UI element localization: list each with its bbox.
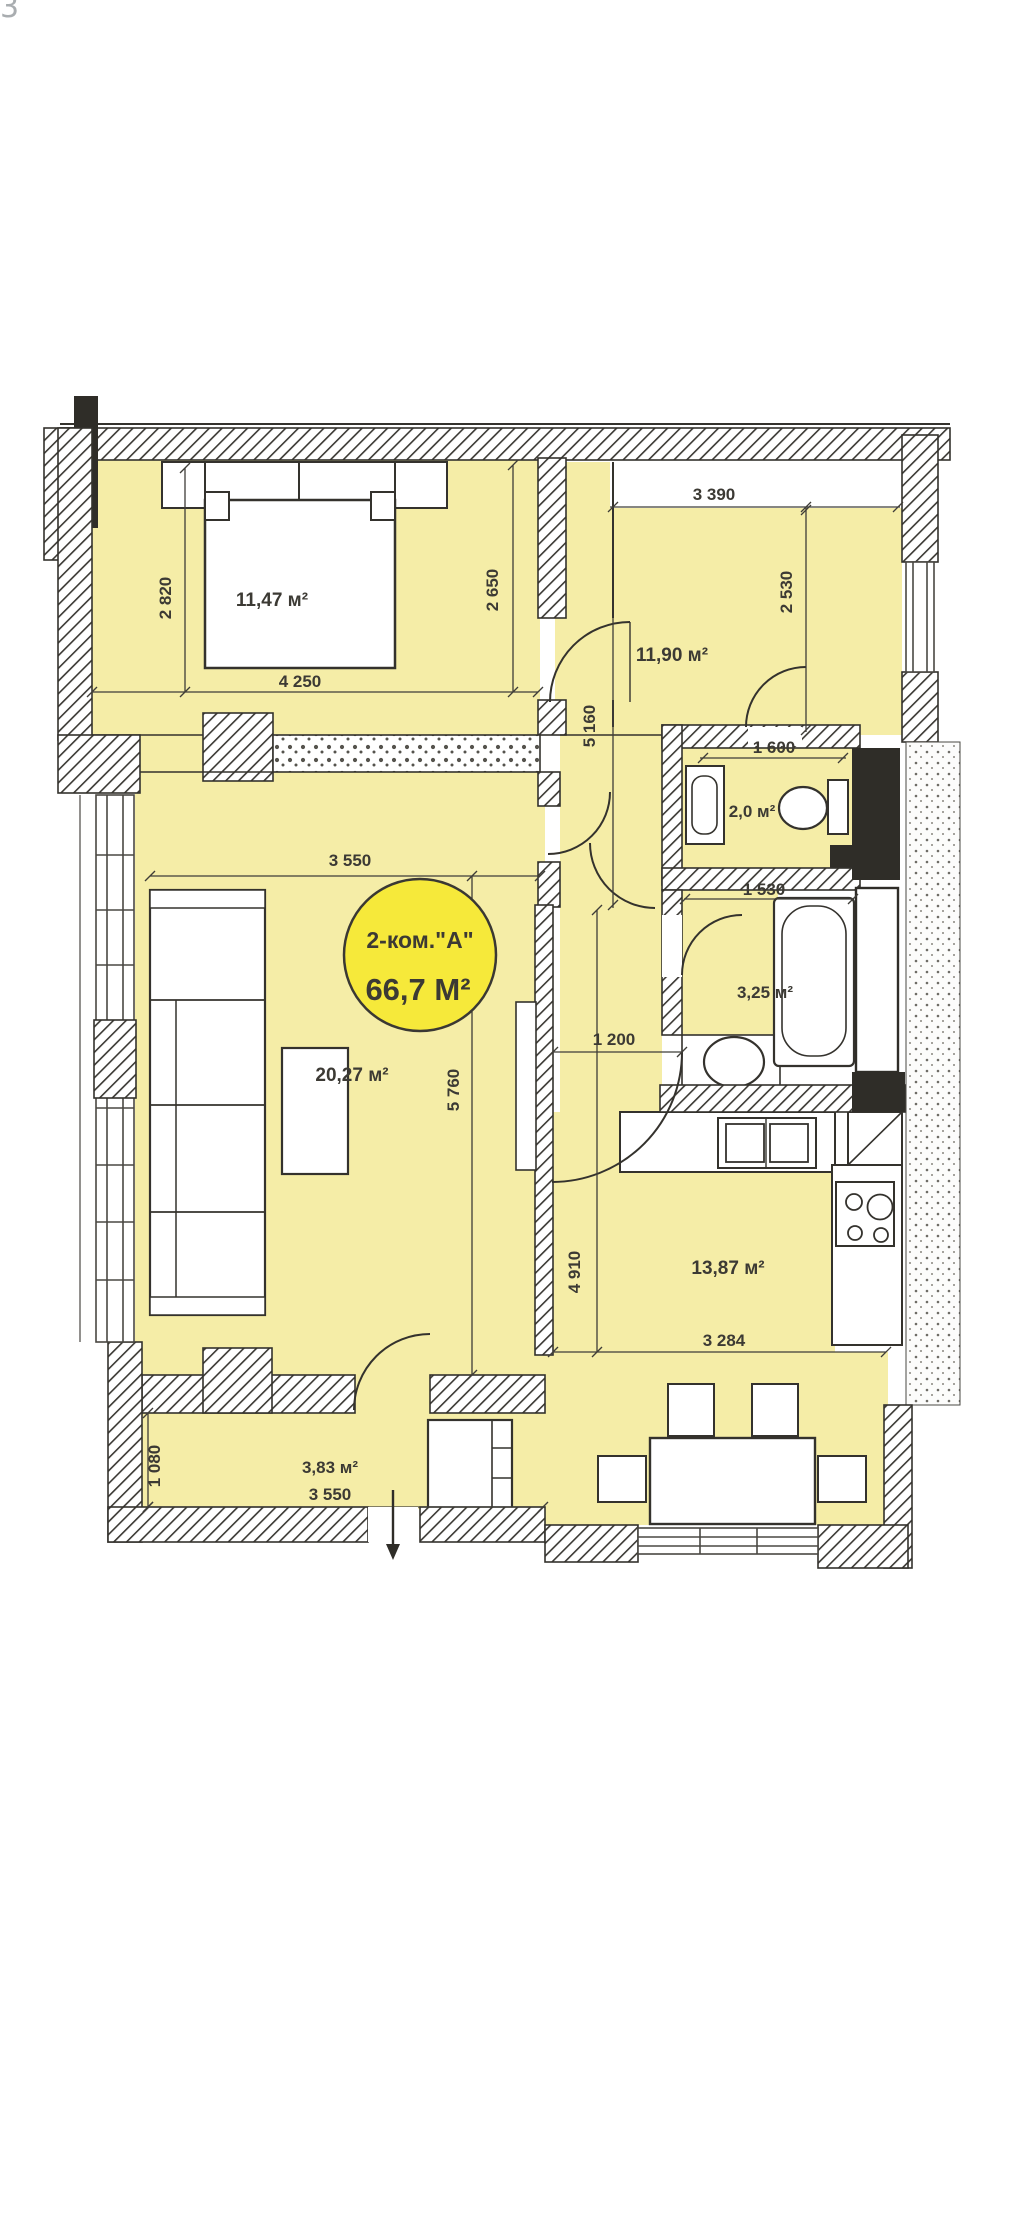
- bed-corner-right: [371, 492, 395, 520]
- wc-area-label: 2,0 м²: [729, 802, 776, 821]
- living-area-label: 20,27 м²: [315, 1065, 388, 1086]
- sofa-group: [150, 890, 265, 1315]
- dim-5160-label: 5 160: [580, 705, 599, 748]
- chair: [668, 1384, 714, 1436]
- chair: [818, 1456, 866, 1502]
- wardrobe: [428, 1420, 512, 1508]
- dim-3550-top-label: 3 550: [329, 851, 372, 870]
- wall-right-top: [902, 435, 938, 562]
- vent-shaft: [856, 888, 898, 1072]
- floor-plan-drawing: 2-ком."А" 66,7 М² 11,47 м² 11,90 м² 2,0 …: [0, 0, 1024, 2216]
- dim-1600-label: 1 600: [753, 738, 796, 757]
- sofa-armrest-bottom: [150, 1297, 265, 1315]
- window-kitchen: [638, 1528, 818, 1554]
- chair: [752, 1384, 798, 1436]
- wall-left-bedroom: [58, 428, 92, 740]
- bath-area-label: 3,25 м²: [737, 983, 793, 1002]
- burner: [874, 1228, 888, 1242]
- burner: [848, 1226, 862, 1240]
- burner: [846, 1194, 862, 1210]
- dim-4250-label: 4 250: [279, 672, 322, 691]
- bath-washbasin: [704, 1037, 764, 1087]
- insulated-band: [273, 735, 540, 772]
- arrow-head: [386, 1544, 400, 1560]
- dining-table: [650, 1438, 815, 1524]
- dim-2820-label: 2 820: [156, 577, 175, 620]
- wall-bedroom-right: [538, 458, 566, 618]
- dim-3550-bottom-label: 3 550: [309, 1485, 352, 1504]
- chair: [598, 1456, 646, 1502]
- room2-area-label: 11,90 м²: [636, 645, 708, 666]
- wall-column: [203, 713, 273, 781]
- bed-mattress: [205, 500, 395, 668]
- dim-3390-label: 3 390: [693, 485, 736, 504]
- corner-page-number: 3: [0, 0, 19, 25]
- unit-badge: 2-ком."А" 66,7 М²: [344, 879, 496, 1031]
- hall-area-label: 3,83 м²: [302, 1458, 358, 1477]
- toilet-bowl: [779, 787, 827, 829]
- sofa-body: [150, 890, 265, 1315]
- window-room2: [906, 562, 934, 672]
- dim-2530-label: 2 530: [777, 571, 796, 614]
- badge-total-area: 66,7 М²: [365, 972, 470, 1007]
- dim-1200-label: 1 200: [593, 1030, 636, 1049]
- bed-corner-left: [205, 492, 229, 520]
- toilet-tank: [828, 780, 848, 834]
- wall-column-2: [203, 1348, 272, 1413]
- stove: [836, 1182, 894, 1246]
- sofa-armrest-top: [150, 890, 265, 908]
- dim-2650-label: 2 650: [483, 569, 502, 612]
- dim-1080-label: 1 080: [145, 1445, 164, 1488]
- wall-corridor-kitchen: [535, 905, 553, 1355]
- dim-1530-label: 1 530: [743, 880, 786, 899]
- wall-hall-bottom: [108, 1507, 368, 1542]
- burner: [868, 1195, 893, 1220]
- dim-5760-label: 5 760: [444, 1069, 463, 1112]
- room2-floor: [555, 508, 902, 735]
- door-leaf-open: [516, 1002, 536, 1170]
- badge-circle: [344, 879, 496, 1031]
- wall-wc-left: [662, 725, 682, 885]
- kitchen-area-label: 13,87 м²: [691, 1258, 764, 1279]
- nightstand-right: [395, 462, 447, 508]
- bath-floor: [682, 890, 778, 1035]
- bedroom-area-label: 11,47 м²: [236, 590, 308, 611]
- facade-pier: [94, 1020, 136, 1098]
- floor-plan-page: 3: [0, 0, 1024, 2216]
- wall-top: [60, 428, 950, 460]
- exterior-ledge: [906, 742, 960, 1405]
- dim-4910-label: 4 910: [565, 1251, 584, 1294]
- dim-3284-label: 3 284: [703, 1331, 746, 1350]
- badge-unit-type: 2-ком."А": [366, 927, 473, 953]
